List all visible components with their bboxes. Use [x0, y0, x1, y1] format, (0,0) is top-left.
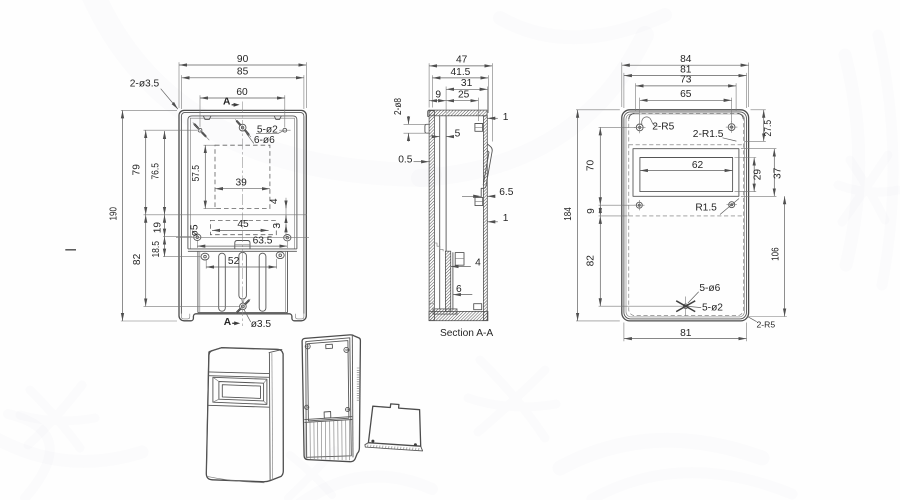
svg-text:184: 184: [563, 207, 574, 221]
svg-text:47: 47: [456, 55, 468, 66]
svg-text:9: 9: [435, 90, 441, 101]
svg-text:60: 60: [236, 87, 248, 98]
svg-text:4: 4: [475, 258, 481, 269]
svg-text:4: 4: [269, 198, 280, 204]
svg-text:3: 3: [272, 223, 283, 229]
svg-text:73: 73: [680, 75, 692, 86]
svg-text:45: 45: [237, 219, 249, 230]
svg-text:1: 1: [503, 112, 509, 123]
svg-text:25: 25: [458, 90, 470, 101]
svg-text:9: 9: [586, 208, 597, 214]
svg-text:37: 37: [772, 167, 783, 179]
svg-text:190: 190: [108, 207, 119, 221]
svg-text:106: 106: [771, 247, 782, 261]
svg-text:2-ø3.5: 2-ø3.5: [130, 79, 160, 90]
svg-text:ø3.5: ø3.5: [251, 319, 272, 330]
svg-text:6: 6: [456, 284, 462, 295]
svg-text:2-R5: 2-R5: [756, 320, 775, 330]
svg-text:6.5: 6.5: [499, 187, 513, 198]
svg-text:18.5: 18.5: [151, 241, 162, 258]
svg-text:90: 90: [237, 54, 249, 65]
svg-text:R1.5: R1.5: [695, 202, 717, 213]
svg-text:19: 19: [153, 222, 164, 234]
svg-text:2-R5: 2-R5: [652, 122, 674, 133]
svg-text:5-ø2: 5-ø2: [702, 303, 723, 314]
svg-text:52: 52: [228, 256, 240, 267]
svg-text:2-R1.5: 2-R1.5: [693, 129, 724, 140]
svg-text:63.5: 63.5: [253, 236, 273, 247]
svg-text:85: 85: [237, 67, 249, 78]
svg-text:84: 84: [680, 54, 692, 65]
svg-text:Section A-A: Section A-A: [440, 328, 493, 339]
svg-text:70: 70: [585, 160, 596, 172]
svg-text:82: 82: [132, 253, 143, 265]
svg-text:A: A: [224, 317, 232, 328]
svg-text:76.5: 76.5: [150, 163, 161, 180]
svg-text:27.5: 27.5: [763, 120, 774, 137]
svg-text:ø5: ø5: [190, 224, 201, 236]
svg-text:31: 31: [461, 78, 473, 89]
svg-text:2-ø8: 2-ø8: [393, 98, 404, 115]
svg-text:0.5: 0.5: [398, 154, 412, 165]
svg-text:6-ø6: 6-ø6: [254, 135, 275, 146]
svg-text:41.5: 41.5: [450, 67, 470, 78]
svg-text:39: 39: [236, 177, 248, 188]
svg-text:5: 5: [455, 128, 461, 139]
svg-text:79: 79: [132, 164, 143, 176]
svg-text:82: 82: [585, 255, 596, 267]
svg-text:57.5: 57.5: [191, 165, 202, 182]
svg-text:A: A: [223, 97, 231, 108]
svg-text:65: 65: [680, 89, 692, 100]
svg-text:29: 29: [753, 169, 764, 181]
svg-text:81: 81: [680, 328, 692, 339]
svg-text:1: 1: [503, 213, 509, 224]
svg-text:5-ø6: 5-ø6: [699, 283, 720, 294]
svg-text:62: 62: [692, 160, 704, 171]
